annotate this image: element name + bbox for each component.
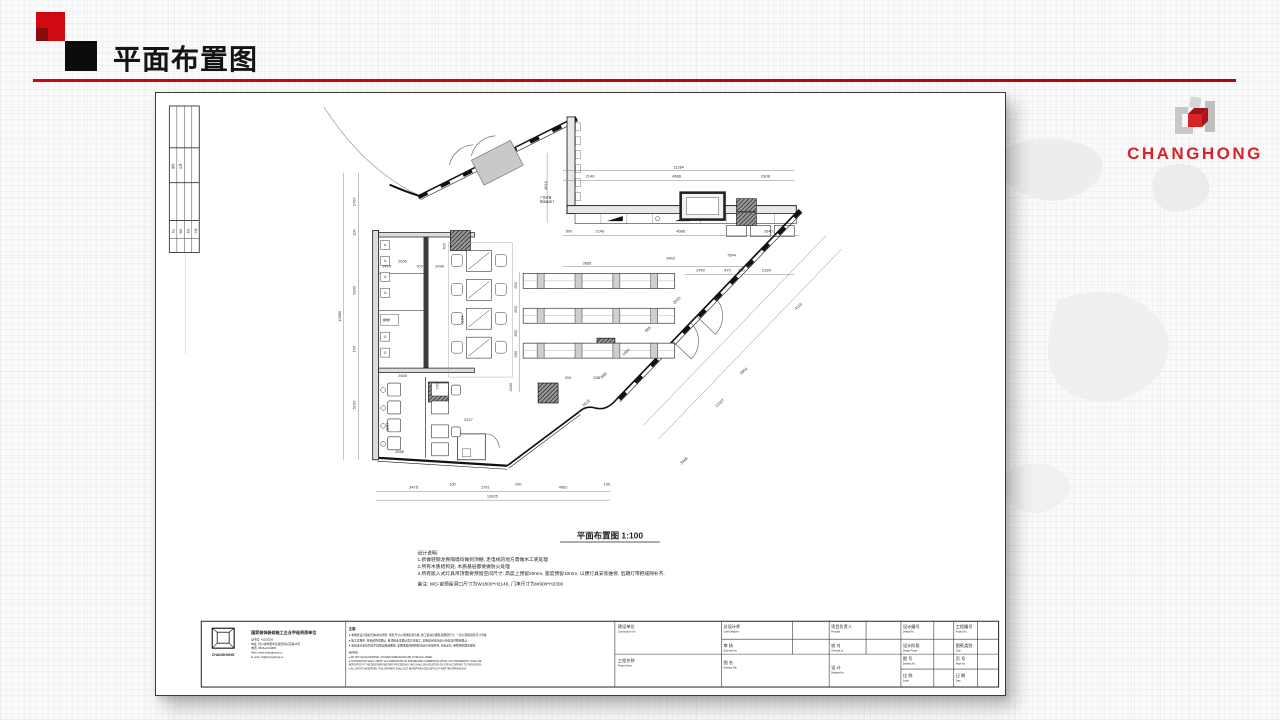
svg-text:建设单位: 建设单位	[618, 623, 635, 629]
door-swing-arc	[485, 434, 499, 448]
svg-text:设计编号: 设计编号	[903, 623, 920, 629]
svg-text:700: 700	[738, 267, 745, 272]
lounge-seating	[381, 383, 461, 456]
svg-text:2600: 2600	[398, 258, 408, 263]
svg-text:11027: 11027	[714, 397, 725, 408]
svg-text:2.所有木质结构处, 木质基层都要做防火处理: 2.所有木质结构处, 木质基层都要做防火处理	[418, 563, 511, 570]
svg-text:3.所有嵌入式灯具吊顶需要预留空间尺寸: 高度上预留20mm: 3.所有嵌入式灯具吊顶需要预留空间尺寸: 高度上预留20mm, 宽度预留10mm…	[418, 570, 665, 577]
svg-text:100: 100	[352, 228, 357, 235]
svg-text:13880: 13880	[337, 310, 342, 322]
decor-black-square	[65, 41, 97, 71]
svg-text:比 例: 比 例	[903, 672, 913, 678]
svg-text:玻璃自动门: 玻璃自动门	[540, 200, 554, 204]
svg-text:页 号: 页 号	[956, 655, 966, 661]
svg-text:800: 800	[513, 329, 518, 336]
door-swing-arc	[691, 323, 699, 359]
svg-text:图 号: 图 号	[903, 655, 913, 661]
svg-text:NOTES:: NOTES:	[349, 651, 359, 655]
page-title: 平面布置图	[113, 38, 258, 78]
svg-text:650: 650	[513, 350, 518, 357]
svg-text:2533: 2533	[672, 295, 682, 305]
svg-text:● ALL RIGHTS RESERVED. THIS DR: ● ALL RIGHTS RESERVED. THIS DRAWING SHAL…	[349, 667, 467, 670]
door-swing-arc	[449, 145, 473, 165]
svg-text:2160: 2160	[508, 382, 513, 392]
svg-text:2640: 2640	[764, 229, 774, 234]
svg-text:Drawing Title: Drawing Title	[724, 666, 738, 669]
svg-text:E-mail: ch@changhong.cc: E-mail: ch@changhong.cc	[251, 655, 284, 659]
svg-text:5393: 5393	[352, 285, 357, 295]
svg-text:800: 800	[513, 305, 518, 312]
svg-text:Designed by: Designed by	[831, 672, 845, 674]
site-boundary	[324, 107, 578, 200]
svg-text:设计说明:: 设计说明:	[418, 549, 438, 556]
svg-text:储物柜: 储物柜	[383, 318, 391, 322]
svg-text:100: 100	[515, 482, 522, 487]
svg-text:Chief Designer: Chief Designer	[724, 631, 739, 634]
svg-text:100: 100	[352, 345, 357, 352]
svg-text:3402: 3402	[666, 255, 675, 260]
svg-text:2140: 2140	[586, 174, 596, 179]
svg-text:700: 700	[434, 382, 439, 389]
plan-scale-title: 平面布置图 1:100	[577, 531, 644, 541]
svg-text:500: 500	[566, 229, 573, 234]
svg-text:470: 470	[724, 267, 731, 272]
floor-plan-drawing: 平面布置图 1:100 1128421404686230850021404686…	[156, 93, 1005, 695]
svg-text:注意:: 注意:	[349, 626, 357, 631]
svg-text:REPORTED TO THE DESIGNER BEFOR: REPORTED TO THE DESIGNER BEFORE PROCEEDI…	[349, 664, 482, 667]
svg-text:图 名: 图 名	[724, 659, 734, 665]
svg-text:Drawing No.: Drawing No.	[903, 663, 916, 666]
svg-text:Principal: Principal	[831, 631, 840, 634]
svg-text:3475: 3475	[409, 485, 419, 490]
svg-text:2227: 2227	[464, 417, 473, 422]
svg-text:3619: 3619	[581, 398, 591, 408]
svg-text:备注: WD-窗预留洞口尺寸为W1800*H2146, 门净: 备注: WD-窗预留洞口尺寸为W1800*H2146, 门净尺寸为W900*H2…	[418, 581, 564, 588]
svg-text:1096: 1096	[435, 263, 445, 268]
svg-text:3448: 3448	[679, 455, 689, 465]
svg-text:日期: 日期	[193, 228, 197, 233]
svg-text:100: 100	[449, 482, 456, 487]
column	[736, 213, 756, 226]
svg-text:700: 700	[441, 242, 446, 249]
svg-text:● CONTRACTOR SHALL VERIFY ALL: ● CONTRACTOR SHALL VERIFY ALL DIMENSIONS…	[349, 660, 482, 663]
svg-text:● 本图纸设计版权归本单位所有, 所有尺寸以现场实测为准,: ● 本图纸设计版权归本单位所有, 所有尺寸以现场实测为准, 施工前请仔细核对图纸…	[349, 633, 488, 637]
svg-text:4062: 4062	[559, 485, 568, 490]
svg-text:700: 700	[416, 263, 423, 268]
svg-text:4614: 4614	[543, 180, 548, 190]
svg-text:2140: 2140	[596, 229, 606, 234]
svg-text:Design No.: Design No.	[903, 632, 915, 634]
svg-text:200: 200	[565, 375, 572, 380]
svg-text:设 计: 设 计	[831, 664, 841, 670]
svg-text:4119: 4119	[793, 301, 803, 311]
header-rule	[33, 79, 1236, 82]
changhong-logo-text: CHANGHONG	[1120, 144, 1270, 164]
column	[736, 199, 756, 212]
svg-text:Design Phase: Design Phase	[903, 651, 918, 653]
svg-text:专业: 专业	[171, 228, 175, 233]
svg-text:● 未经设计单位同意不得擅自修改图纸, 本图纸最终解释权归设: ● 未经设计单位同意不得擅自修改图纸, 本图纸最终解释权归设计单位所有, 违者必…	[349, 644, 477, 648]
svg-text:1.新做轻钢龙骨隔墙均做到顶棚, 走电线的地方需做木工底处理: 1.新做轻钢龙骨隔墙均做到顶棚, 走电线的地方需做木工底处理	[418, 556, 549, 563]
svg-text:2555: 2555	[395, 449, 405, 454]
svg-text:总设计师: 总设计师	[724, 623, 741, 629]
svg-text:3504: 3504	[738, 366, 748, 376]
display-tables	[523, 273, 674, 358]
svg-text:设计阶段: 设计阶段	[903, 642, 920, 648]
svg-text:960: 960	[600, 370, 609, 379]
svg-text:项目负责人: 项目负责人	[831, 623, 853, 629]
svg-text:记录: 记录	[178, 163, 182, 169]
svg-text:国家装饰装修施工企业甲级资质单位: 国家装饰装修施工企业甲级资质单位	[251, 629, 316, 635]
changhong-logo: CHANGHONG	[1120, 94, 1270, 164]
drawing-sheet: 平面布置图 1:100 1128421404686230850021404686…	[155, 92, 1006, 696]
svg-text:Page No.: Page No.	[956, 664, 966, 666]
svg-text:100: 100	[604, 482, 611, 487]
svg-text:3685: 3685	[583, 260, 593, 265]
svg-text:6194: 6194	[459, 315, 464, 325]
svg-text:7544: 7544	[727, 252, 737, 257]
svg-text:Checked by: Checked by	[831, 651, 844, 653]
titleblock-logo-icon	[212, 628, 234, 648]
svg-text:2189: 2189	[762, 267, 772, 272]
svg-text:Project No.: Project No.	[956, 631, 968, 634]
title-block: CHANGHONG 国家装饰装修施工企业甲级资质单位证书号: 41100236地…	[201, 621, 998, 687]
decor-red-square	[36, 12, 65, 41]
wall-cabinets	[381, 241, 399, 358]
slide-background: { "slide": { "title": "平面布置图", "accent_c…	[0, 0, 1280, 720]
svg-text:2414: 2414	[382, 263, 392, 268]
svg-text:2308: 2308	[761, 174, 771, 179]
svg-text:Scale: Scale	[903, 680, 909, 682]
svg-text:Examined by: Examined by	[724, 651, 738, 653]
svg-text:11625: 11625	[487, 494, 499, 499]
changhong-logo-icon	[1167, 94, 1223, 140]
svg-text:姓名: 姓名	[178, 228, 182, 233]
svg-text:Type: Type	[956, 651, 962, 653]
svg-text:11284: 11284	[673, 165, 685, 170]
dimension-lines	[344, 153, 841, 500]
svg-text:● DO NOT SCALE DRAWING, FIGURE: ● DO NOT SCALE DRAWING, FIGURED DIMENSIO…	[349, 656, 433, 659]
svg-text:2600: 2600	[398, 373, 408, 378]
svg-text:工程名称: 工程名称	[618, 657, 635, 663]
design-notes: 设计说明:1.新做轻钢龙骨隔墙均做到顶棚, 走电线的地方需做木工底处理2.所有木…	[418, 549, 665, 587]
svg-text:4686: 4686	[672, 174, 682, 179]
svg-text:1187: 1187	[385, 423, 390, 432]
svg-text:Date: Date	[956, 679, 962, 682]
workstations	[448, 243, 512, 378]
svg-text:审 核: 审 核	[724, 642, 734, 648]
svg-text:2767: 2767	[352, 197, 357, 206]
svg-text:650: 650	[513, 281, 518, 288]
svg-text:● 施工过程中, 材料颜色需确认, 且须经业主确认后方可施工: ● 施工过程中, 材料颜色需确认, 且须经业主确认后方可施工, 如有疑问请与设计…	[349, 638, 468, 642]
svg-text:图纸类别: 图纸类别	[956, 642, 973, 648]
svg-text:签名: 签名	[186, 228, 190, 233]
svg-text:Project Name: Project Name	[618, 664, 633, 667]
plan-annotations: 修改记录专业姓名签名日期广告灯箱玻璃自动门储物柜	[171, 163, 554, 322]
door-swing-arc	[715, 297, 723, 334]
svg-text:Construction Unit: Construction Unit	[618, 631, 636, 634]
svg-text:985: 985	[644, 324, 653, 333]
svg-text:日 期: 日 期	[956, 672, 966, 678]
svg-text:校 对: 校 对	[831, 642, 841, 648]
svg-text:5150: 5150	[352, 400, 357, 410]
titleblock-logo-text: CHANGHONG	[212, 653, 235, 657]
svg-text:2400: 2400	[696, 267, 706, 272]
svg-text:4686: 4686	[676, 229, 686, 234]
svg-text:工程编号: 工程编号	[956, 623, 973, 629]
svg-text:2791: 2791	[481, 485, 491, 490]
svg-text:修改: 修改	[171, 163, 175, 169]
